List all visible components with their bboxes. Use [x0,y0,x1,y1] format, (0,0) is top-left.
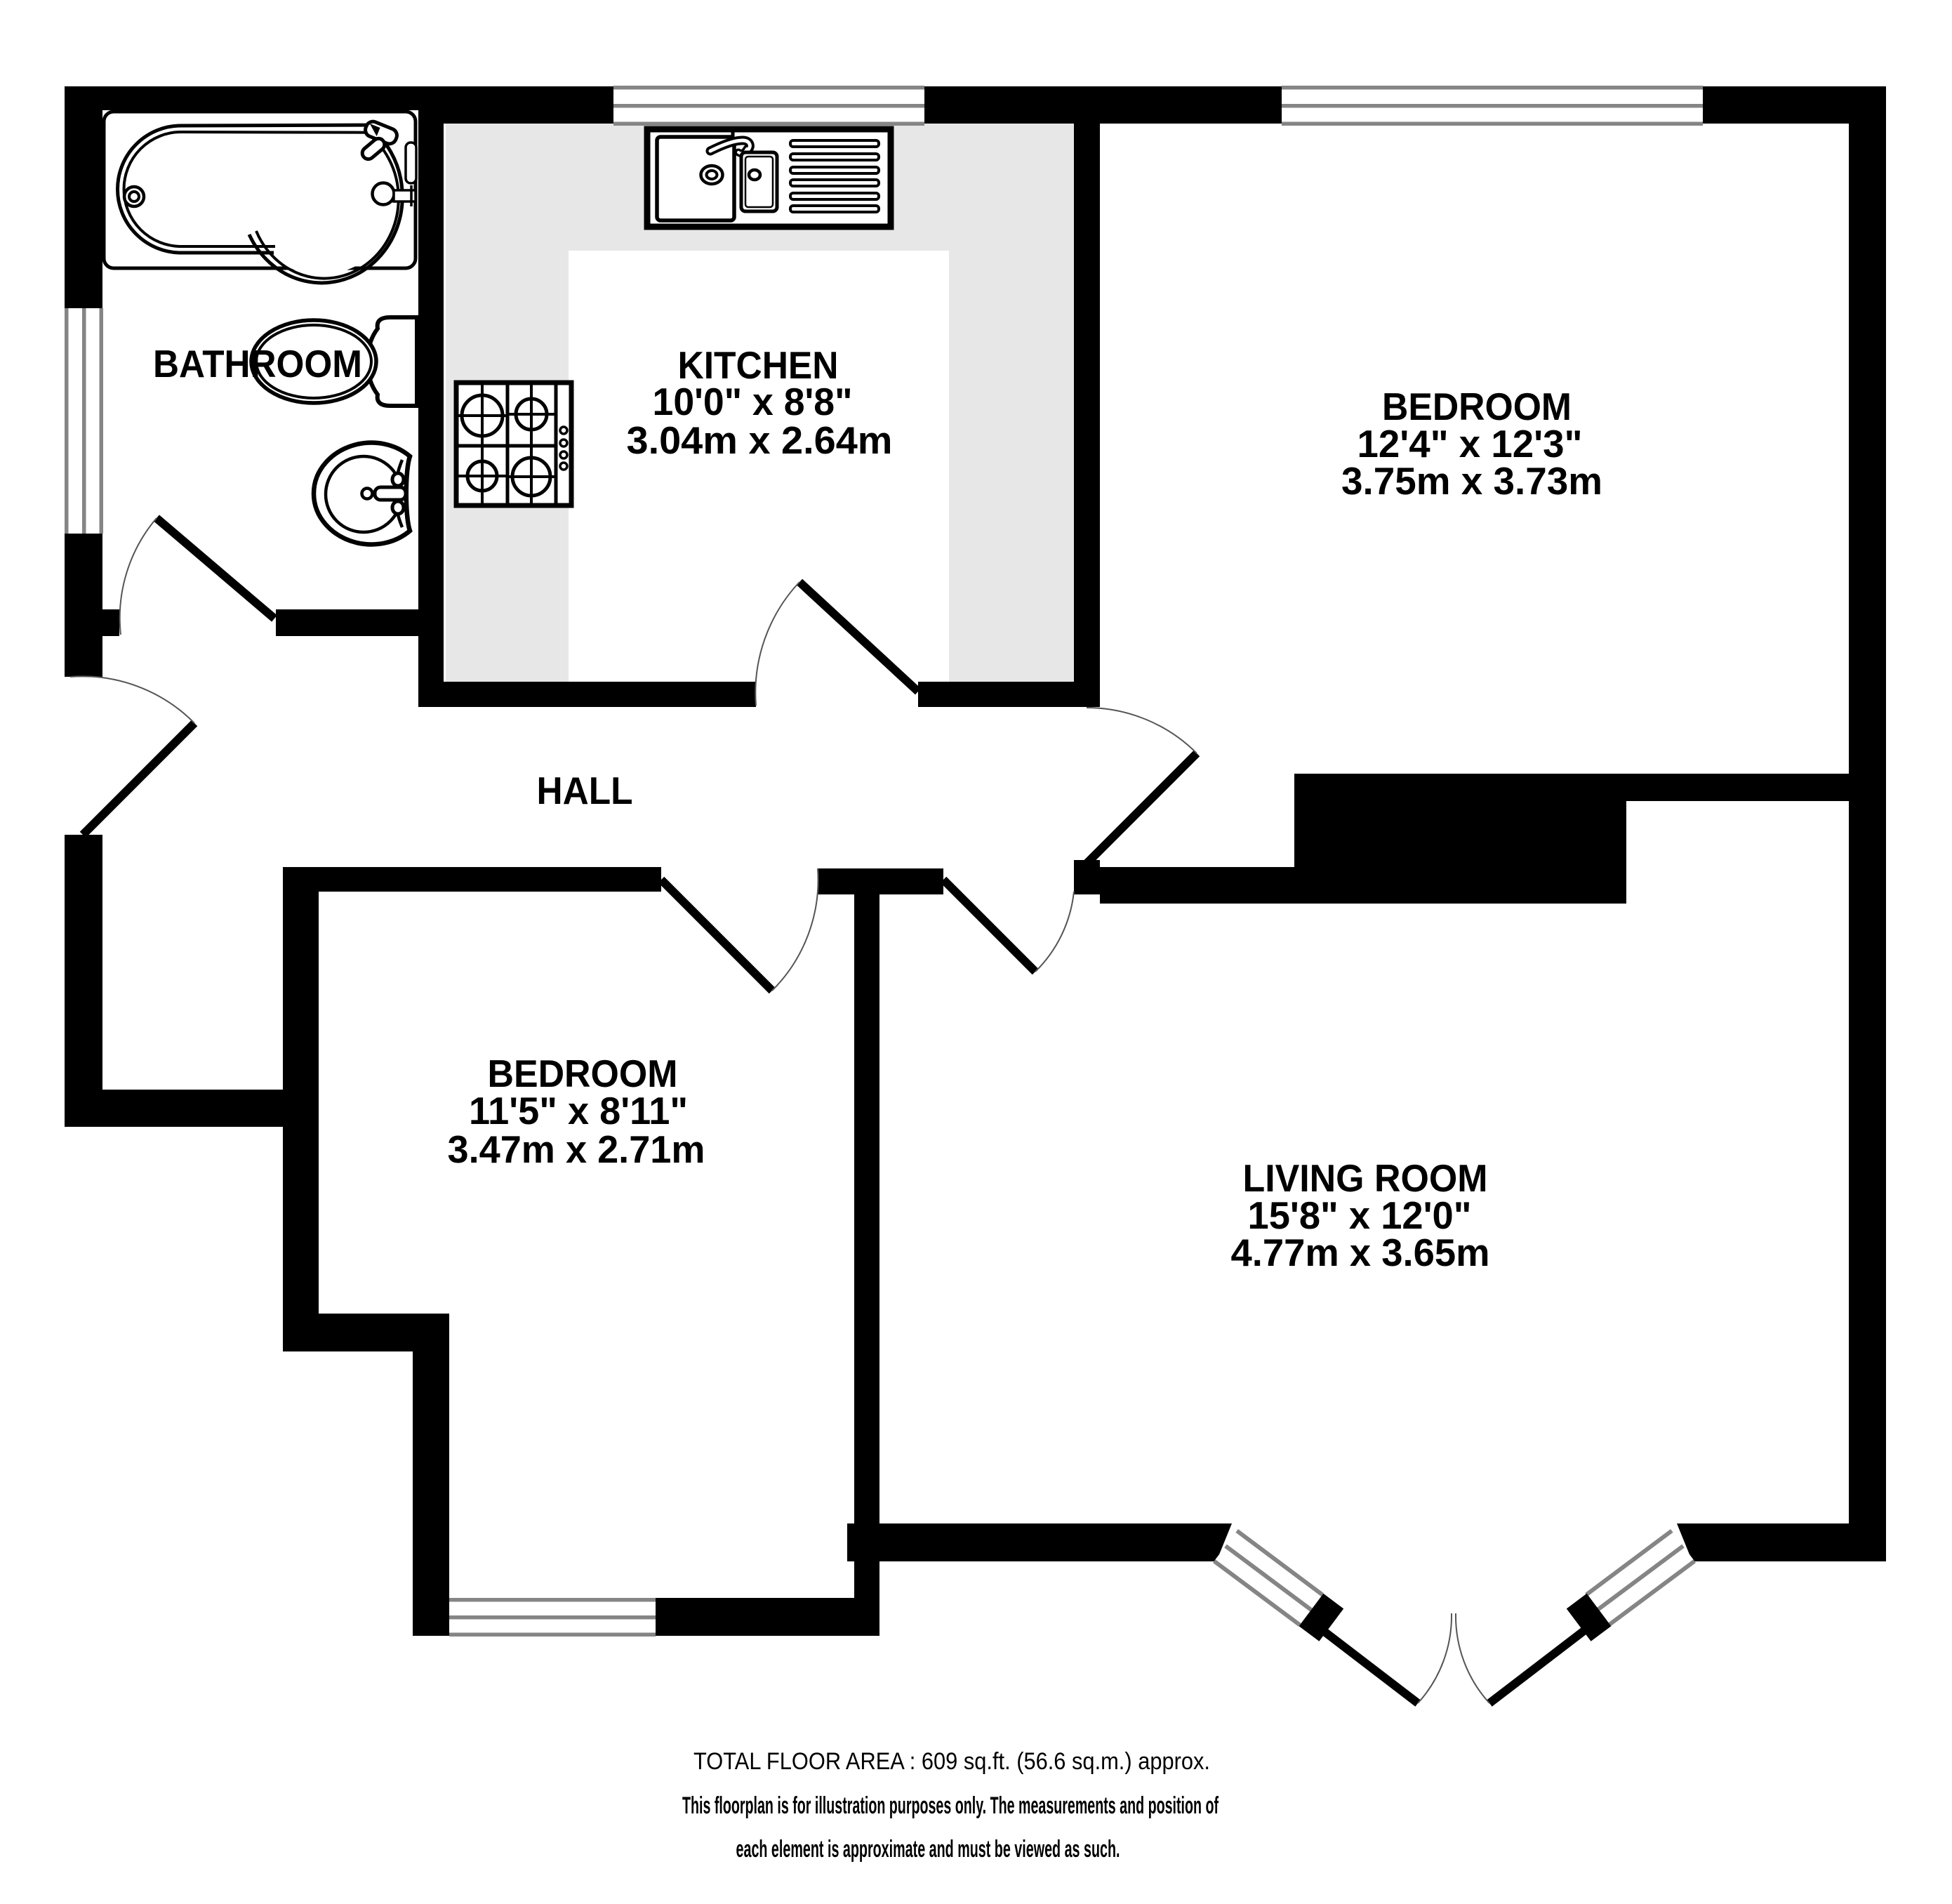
svg-text:11'5" x 8'11": 11'5" x 8'11" [469,1089,688,1132]
svg-text:BATHROOM: BATHROOM [153,342,362,385]
svg-text:3.75m x 3.73m: 3.75m x 3.73m [1341,459,1602,503]
svg-text:3.47m x 2.71m: 3.47m x 2.71m [448,1128,705,1171]
svg-text:This floorplan is for illustra: This floorplan is for illustration purpo… [682,1792,1219,1819]
svg-text:4.77m x 3.65m: 4.77m x 3.65m [1231,1231,1490,1274]
svg-text:TOTAL FLOOR AREA : 609 sq.ft.: TOTAL FLOOR AREA : 609 sq.ft. (56.6 sq.m… [693,1748,1210,1775]
svg-text:3.04m x 2.64m: 3.04m x 2.64m [627,418,893,462]
svg-text:each element is approximate an: each element is approximate and must be … [736,1836,1120,1863]
svg-text:10'0" x 8'8": 10'0" x 8'8" [653,380,853,423]
svg-text:HALL: HALL [537,769,633,812]
